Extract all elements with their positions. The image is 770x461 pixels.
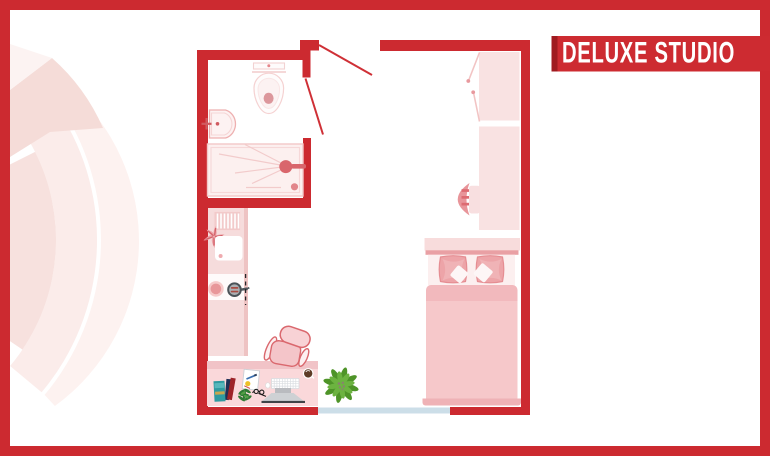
svg-text:DELUXE STUDIO: DELUXE STUDIO bbox=[562, 37, 735, 70]
